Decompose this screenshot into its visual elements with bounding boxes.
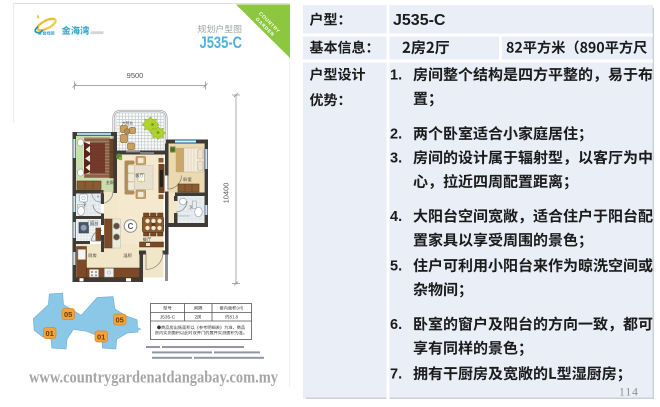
svg-text:2.: 2. [390,127,402,143]
svg-text:J535-C: J535-C [160,315,176,321]
svg-text:01: 01 [97,333,105,342]
svg-text:6.: 6. [390,317,402,333]
svg-text:10400: 10400 [222,183,231,204]
svg-text:3.: 3. [390,151,402,167]
svg-text:7.: 7. [390,367,402,383]
svg-text:1.: 1. [390,68,402,84]
svg-text:5.: 5. [390,259,402,275]
svg-text:9500: 9500 [127,71,144,80]
svg-text:114: 114 [619,387,639,399]
svg-text:4.: 4. [390,209,402,225]
svg-text:J535-C: J535-C [393,12,446,29]
svg-text:C: C [128,222,134,231]
svg-text:01: 01 [46,329,54,338]
svg-text:www.countrygardenatdangabay.co: www.countrygardenatdangabay.com.my [29,368,278,387]
svg-text:05: 05 [116,316,124,325]
svg-text:05: 05 [64,310,72,319]
svg-text:J535-C: J535-C [200,33,243,52]
